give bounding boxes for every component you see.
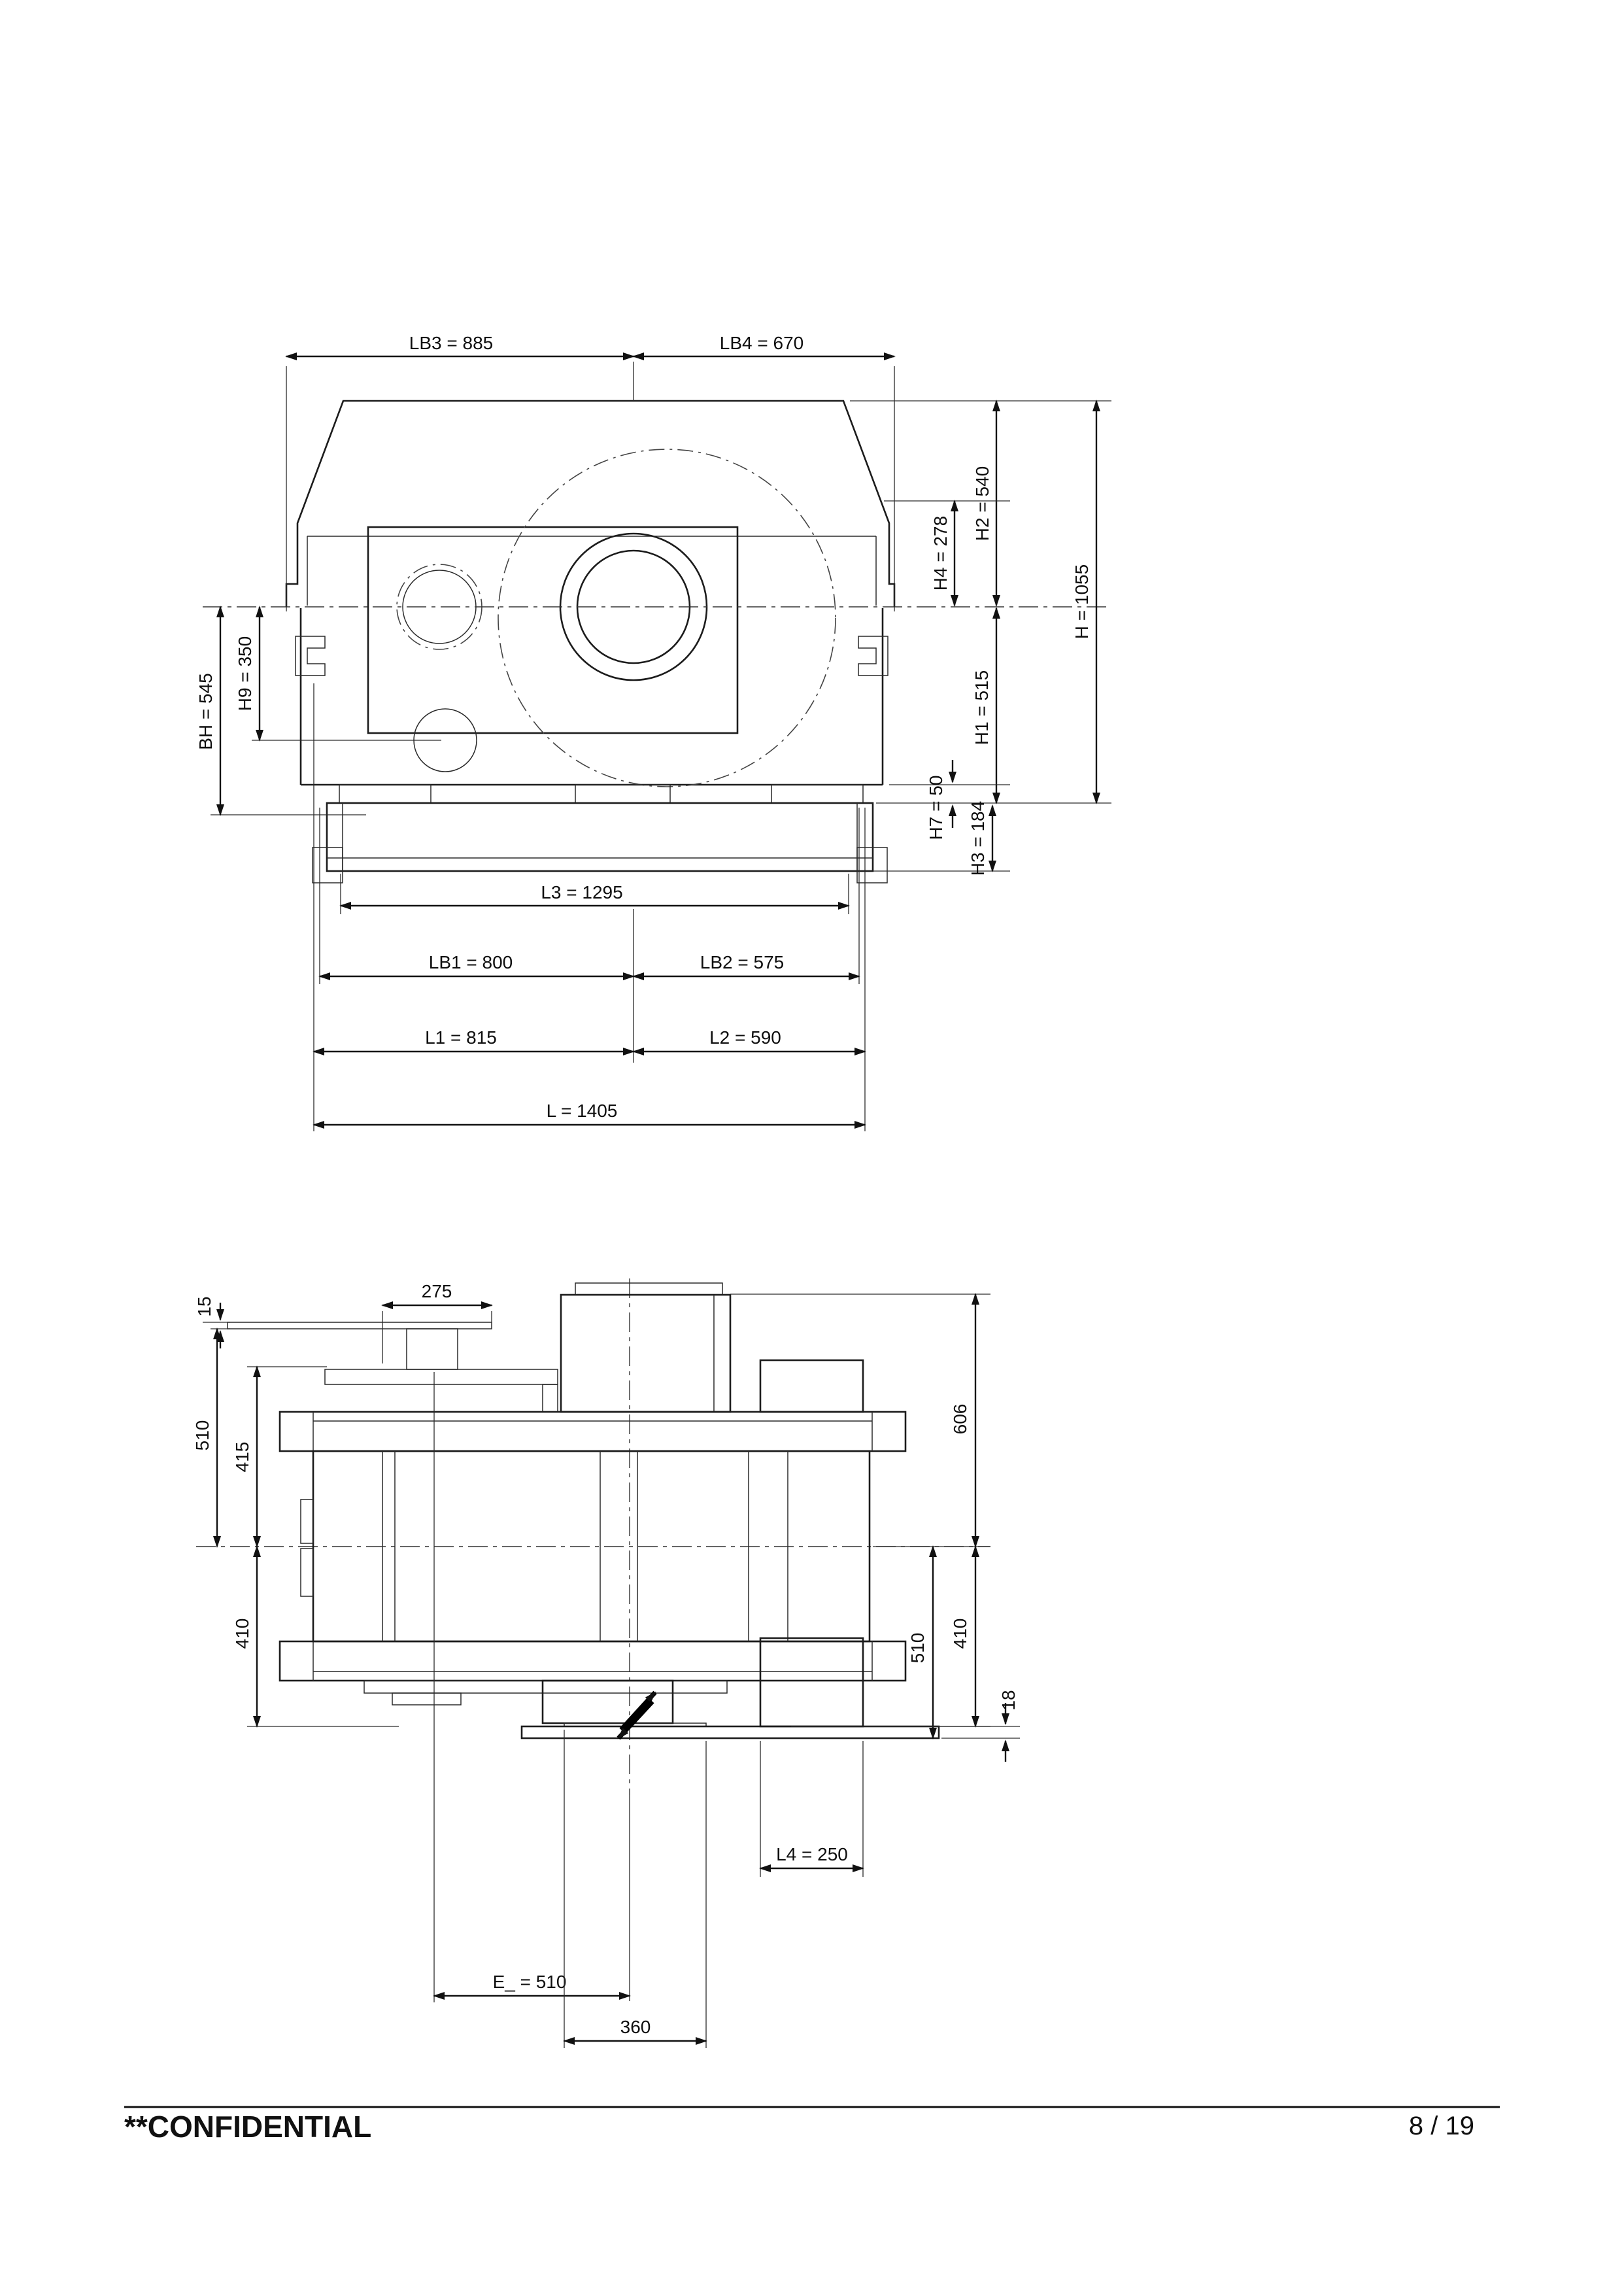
- gear-pitch-circle: [498, 449, 836, 787]
- dim-label-h3: H3 = 184: [968, 801, 988, 876]
- dim-l3: L3 = 1295: [341, 874, 849, 914]
- base-pad-center: [575, 785, 670, 803]
- dim-h1: H1 = 515: [972, 608, 996, 803]
- dim-label-lb1: LB1 = 800: [429, 952, 513, 972]
- dim-label-h2: H2 = 540: [972, 466, 992, 541]
- dim-label-h1: H1 = 515: [972, 670, 992, 745]
- housing-trapezoid: [286, 401, 894, 607]
- dim-label-510-left: 510: [192, 1420, 212, 1451]
- gearcase-front-box: [368, 527, 737, 733]
- dim-label-410-left: 410: [232, 1619, 252, 1649]
- front-housing-outline: [286, 401, 894, 785]
- top-flange-block: [561, 1295, 730, 1412]
- dim-410-right: 410: [791, 1547, 990, 1726]
- dim-l4: L4 = 250: [760, 1741, 863, 1877]
- dim-label-18: 18: [998, 1690, 1019, 1710]
- front-base: [313, 785, 887, 883]
- bottom-step: [392, 1693, 461, 1705]
- dim-label-360: 360: [620, 2017, 651, 2037]
- left-boss-lower: [301, 1549, 313, 1596]
- page-number: 8 / 19: [1409, 2112, 1474, 2140]
- dim-lb2: LB2 = 575: [634, 808, 859, 984]
- dim-label-l: L = 1405: [547, 1101, 618, 1121]
- dim-lb1: LB1 = 800: [320, 808, 634, 1063]
- dim-label-l4: L4 = 250: [776, 1844, 848, 1864]
- dim-15: 15: [194, 1296, 230, 1348]
- dim-label-606: 606: [950, 1404, 970, 1435]
- dim-label-h7: H7 = 50: [926, 776, 946, 840]
- dim-label-lb4: LB4 = 670: [720, 333, 804, 353]
- dim-label-15: 15: [194, 1296, 214, 1316]
- direction-arrow: [618, 1692, 655, 1738]
- stool-stem2: [543, 1384, 558, 1412]
- drawing-page: LB3 = 885 LB4 = 670 H2 = 540 H4 = 278 H …: [0, 0, 1624, 2296]
- plan-view: 275 15 510 415 410 606: [192, 1278, 1020, 2048]
- dim-label-h9: H9 = 350: [235, 636, 255, 711]
- block-top-right: [760, 1360, 863, 1412]
- upper-flange-band: [280, 1412, 905, 1451]
- left-boss-upper: [301, 1499, 313, 1543]
- dim-label-e: E_ = 510: [493, 1972, 567, 1992]
- dim-label-h: H = 1055: [1072, 564, 1092, 639]
- plan-outline: [196, 1278, 990, 2001]
- dim-label-lb3: LB3 = 885: [409, 333, 493, 353]
- dim-label-415: 415: [232, 1442, 252, 1473]
- block-bottom-right: [760, 1638, 863, 1726]
- dim-label-l1: L1 = 815: [425, 1027, 497, 1048]
- dim-label-510-right: 510: [907, 1633, 928, 1664]
- top-flange-cap: [575, 1283, 722, 1295]
- dim-label-410-right: 410: [950, 1619, 970, 1649]
- footer: **CONFIDENTIAL 8 / 19: [124, 2107, 1500, 2144]
- base-pad-left: [339, 785, 431, 803]
- stool-bar2: [325, 1369, 558, 1384]
- dim-lb4: LB4 = 670: [634, 333, 894, 611]
- confidential-label: **CONFIDENTIAL: [124, 2110, 371, 2144]
- dim-bh: BH = 545: [195, 607, 366, 815]
- base-plate-18: [522, 1726, 939, 1738]
- dim-l: L = 1405: [314, 1101, 865, 1125]
- bottom-block: [543, 1681, 673, 1723]
- stool-stem: [407, 1329, 458, 1369]
- dim-label-lb2: LB2 = 575: [700, 952, 784, 972]
- front-bores: [397, 449, 836, 787]
- front-elevation-view: LB3 = 885 LB4 = 670 H2 = 540 H4 = 278 H …: [195, 333, 1111, 1131]
- dim-label-275: 275: [422, 1281, 452, 1301]
- dim-510-right: 510: [907, 1547, 933, 1738]
- dim-h9: H9 = 350: [235, 607, 441, 740]
- lower-flange-band: [280, 1641, 905, 1681]
- dim-410-left: 410: [232, 1547, 399, 1726]
- dim-label-bh: BH = 545: [195, 673, 216, 750]
- dim-360: 360: [564, 1730, 706, 2048]
- dim-label-h4: H4 = 278: [930, 516, 951, 591]
- dim-label-l2: L2 = 590: [709, 1027, 781, 1048]
- stool-plate: [228, 1322, 492, 1329]
- dim-606: 606: [730, 1294, 990, 1547]
- dim-510-left: 510: [192, 1329, 217, 1547]
- dim-h: H = 1055: [876, 401, 1111, 803]
- dim-label-l3: L3 = 1295: [541, 882, 622, 902]
- dim-l1: L1 = 815: [314, 683, 634, 1131]
- base-frame: [327, 803, 873, 871]
- base-pad-right: [771, 785, 863, 803]
